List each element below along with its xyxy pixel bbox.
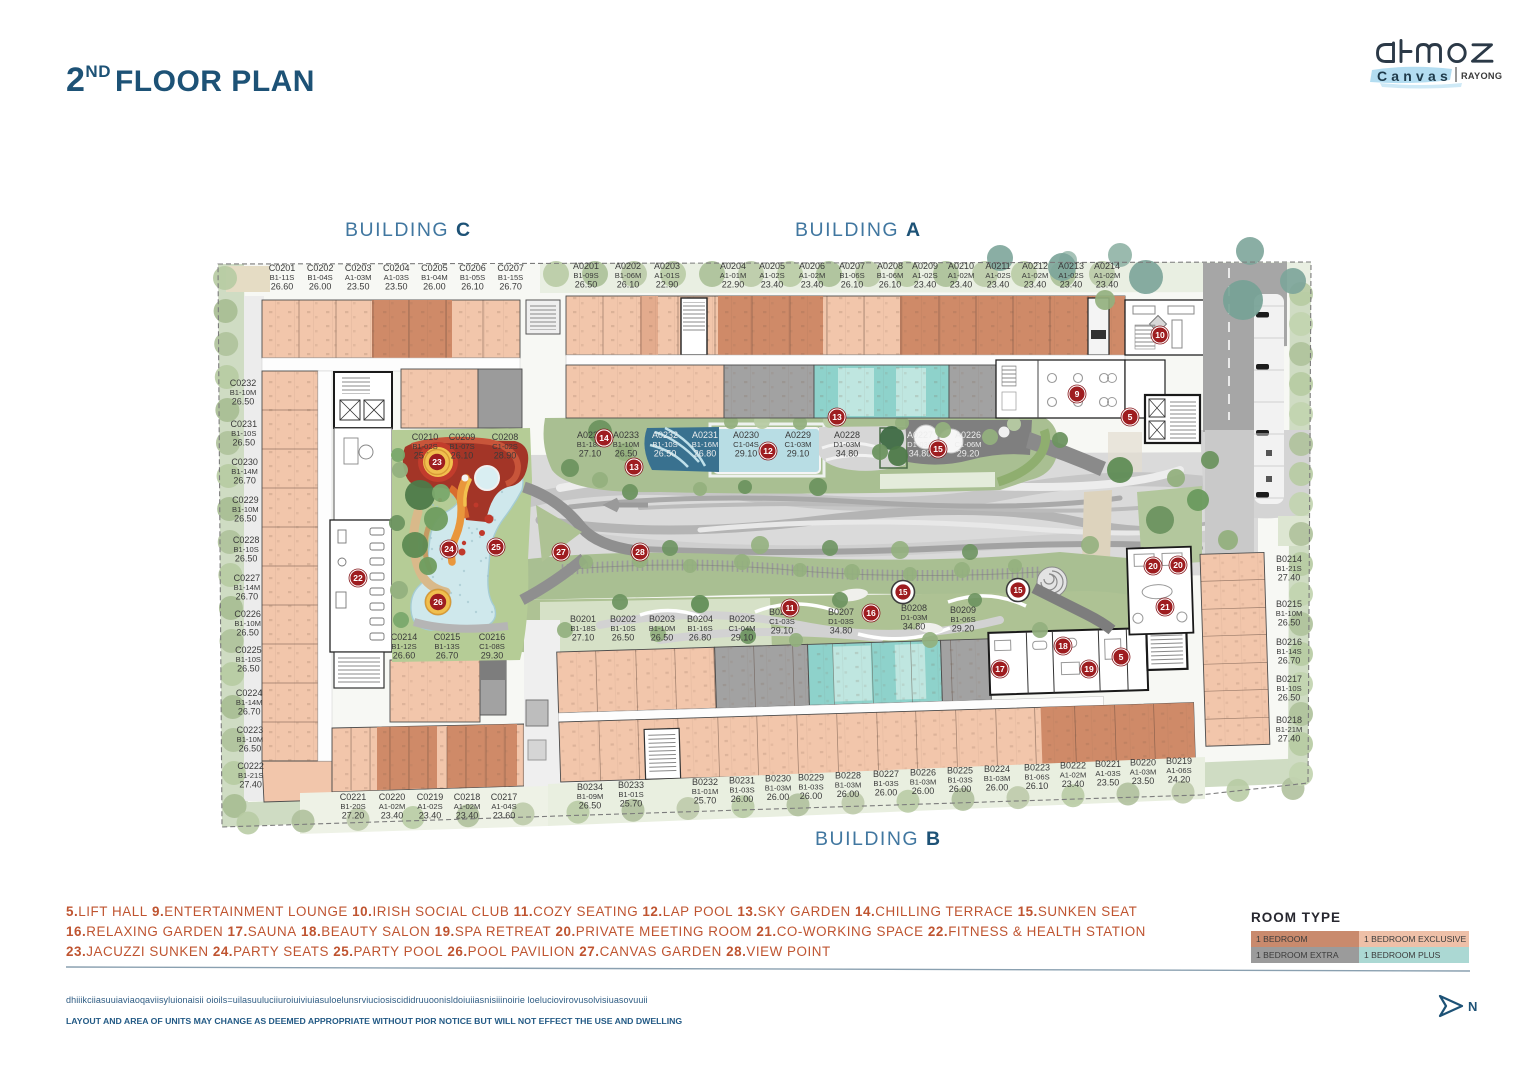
svg-text:B0229B1-03S26.00: B0229B1-03S26.00	[798, 772, 824, 801]
svg-text:A0207B1-06S26.10: A0207B1-06S26.10	[839, 261, 865, 290]
svg-text:A0226C1-06M29.20: A0226C1-06M29.20	[954, 430, 981, 459]
svg-text:BUILDING B: BUILDING B	[815, 828, 942, 850]
svg-text:C0226B1-10M26.50: C0226B1-10M26.50	[234, 609, 261, 638]
svg-text:dhiiikciiasuuiaviaoqaviisyluio: dhiiikciiasuuiaviaoqaviisyluionaisii oio…	[66, 995, 648, 1005]
svg-text:B0207D1-03S34.80: B0207D1-03S34.80	[828, 607, 854, 636]
svg-text:B0232B1-01M25.70: B0232B1-01M25.70	[692, 777, 719, 806]
svg-text:C0208C1-02S28.90: C0208C1-02S28.90	[492, 432, 519, 461]
svg-text:C0205B1-04M26.00: C0205B1-04M26.00	[421, 263, 448, 292]
svg-text:A0206A1-02M23.40: A0206A1-02M23.40	[799, 261, 826, 290]
svg-text:1 BEDROOM EXCLUSIVE: 1 BEDROOM EXCLUSIVE	[1364, 934, 1466, 944]
svg-text:B0215B1-10M26.50: B0215B1-10M26.50	[1276, 599, 1303, 628]
svg-text:C0222B1-21S27.40: C0222B1-21S27.40	[237, 761, 264, 790]
svg-text:13: 13	[629, 462, 639, 472]
svg-text:C0209B1-07S26.10: C0209B1-07S26.10	[449, 432, 476, 461]
svg-text:C0220A1-02M23.40: C0220A1-02M23.40	[379, 792, 406, 821]
svg-text:5.LIFT HALL 9.ENTERTAINMENT L: 5.LIFT HALL 9.ENTERTAINMENT LOUNGE 10.IR…	[66, 904, 1137, 919]
svg-text:C0206B1-05S26.10: C0206B1-05S26.10	[459, 263, 486, 292]
svg-text:B0234B1-09M26.50: B0234B1-09M26.50	[577, 782, 604, 811]
svg-text:C0227B1-14M26.70: C0227B1-14M26.70	[234, 573, 261, 602]
svg-text:A0201B1-09S26.50: A0201B1-09S26.50	[573, 261, 599, 290]
svg-text:C0224B1-14M26.70: C0224B1-14M26.70	[236, 688, 263, 717]
svg-text:B0233B1-01S25.70: B0233B1-01S25.70	[618, 780, 644, 809]
svg-text:Canvas: Canvas	[1377, 68, 1452, 84]
svg-text:B0230B1-03M26.00: B0230B1-03M26.00	[765, 774, 792, 803]
svg-text:B0227B1-03S26.00: B0227B1-03S26.00	[873, 769, 899, 798]
svg-text:B0220A1-03M23.50: B0220A1-03M23.50	[1130, 758, 1157, 787]
svg-text:C0221B1-20S27.20: C0221B1-20S27.20	[340, 792, 367, 821]
svg-text:11: 11	[785, 603, 794, 613]
svg-text:20: 20	[1173, 560, 1183, 570]
svg-text:18: 18	[1058, 641, 1068, 651]
svg-text:A0230C1-04S29.10: A0230C1-04S29.10	[733, 430, 759, 459]
svg-text:5: 5	[1119, 652, 1124, 662]
svg-text:C0215B1-13S26.70: C0215B1-13S26.70	[434, 632, 461, 661]
svg-text:A0209A1-02S23.40: A0209A1-02S23.40	[912, 261, 938, 290]
svg-text:12: 12	[763, 446, 773, 456]
svg-text:13: 13	[832, 412, 842, 422]
svg-text:B0214B1-21S27.40: B0214B1-21S27.40	[1276, 554, 1302, 583]
svg-text:9: 9	[1075, 389, 1080, 399]
svg-text:16.RELAXING GARDEN 17.SAUNA: 16.RELAXING GARDEN 17.SAUNA 18.BEAUTY SA…	[66, 924, 1146, 939]
svg-text:5: 5	[1128, 412, 1133, 422]
svg-text:B0204B1-16S26.80: B0204B1-16S26.80	[687, 614, 713, 643]
svg-text:C0207B1-15S26.70: C0207B1-15S26.70	[497, 263, 524, 292]
svg-text:B0219A1-06S24.20: B0219A1-06S24.20	[1166, 756, 1192, 785]
svg-text:LAYOUT AND AREA OF UNITS MAY C: LAYOUT AND AREA OF UNITS MAY CHANGE AS D…	[66, 1016, 682, 1026]
svg-text:B0225B1-03S26.00: B0225B1-03S26.00	[947, 766, 973, 795]
svg-text:B0226B1-03M26.00: B0226B1-03M26.00	[910, 767, 937, 796]
svg-text:B0218B1-21M27.40: B0218B1-21M27.40	[1276, 715, 1303, 744]
svg-text:28: 28	[635, 547, 645, 557]
svg-text:C0214B1-12S26.60: C0214B1-12S26.60	[391, 632, 418, 661]
svg-text:19: 19	[1084, 664, 1094, 674]
svg-text:15: 15	[933, 444, 943, 454]
svg-text:26: 26	[433, 597, 443, 607]
svg-text:BUILDING A: BUILDING A	[795, 219, 922, 241]
svg-text:C0231B1-10S26.50: C0231B1-10S26.50	[231, 419, 258, 448]
svg-text:B0223B1-06S26.10: B0223B1-06S26.10	[1024, 762, 1050, 791]
svg-text:23.JACUZZI SUNKEN 24.PARTY SE: 23.JACUZZI SUNKEN 24.PARTY SEATS 25.PART…	[66, 944, 831, 959]
svg-text:15: 15	[899, 588, 908, 597]
svg-text:C0202B1-04S26.00: C0202B1-04S26.00	[307, 263, 334, 292]
svg-text:C0229B1-10M26.50: C0229B1-10M26.50	[232, 495, 259, 524]
svg-text:14: 14	[599, 433, 609, 443]
svg-text:A0232B1-10S26.50: A0232B1-10S26.50	[652, 430, 678, 459]
svg-text:B0231B1-03S26.00: B0231B1-03S26.00	[729, 775, 755, 804]
svg-text:B0221A1-03S23.50: B0221A1-03S23.50	[1095, 759, 1121, 788]
svg-text:B0201B1-18S27.10: B0201B1-18S27.10	[570, 614, 596, 643]
svg-text:A0228D1-03M34.80: A0228D1-03M34.80	[833, 430, 860, 459]
svg-text:B0217B1-10S26.50: B0217B1-10S26.50	[1276, 674, 1302, 703]
svg-text:A0231B1-16M26.80: A0231B1-16M26.80	[692, 430, 719, 459]
svg-text:B0224B1-03M26.00: B0224B1-03M26.00	[984, 764, 1011, 793]
svg-text:A0208B1-06M26.10: A0208B1-06M26.10	[877, 261, 904, 290]
svg-text:23: 23	[432, 457, 442, 467]
svg-text:21: 21	[1160, 602, 1170, 612]
svg-text:N: N	[1468, 999, 1477, 1014]
svg-text:16: 16	[866, 608, 876, 618]
svg-text:B0228B1-03M26.00: B0228B1-03M26.00	[835, 771, 862, 800]
svg-text:BUILDING C: BUILDING C	[345, 219, 472, 241]
svg-text:C0201B1-11S26.60: C0201B1-11S26.60	[269, 263, 296, 292]
svg-text:C0232B1-10M26.50: C0232B1-10M26.50	[230, 378, 257, 407]
svg-text:C0219A1-02S23.40: C0219A1-02S23.40	[417, 792, 444, 821]
svg-text:B0216B1-14S26.70: B0216B1-14S26.70	[1276, 637, 1302, 666]
svg-text:25: 25	[491, 542, 501, 552]
svg-text:A0233B1-10M26.50: A0233B1-10M26.50	[613, 430, 640, 459]
svg-text:27: 27	[556, 547, 566, 557]
svg-text:A0205A1-02S23.40: A0205A1-02S23.40	[759, 261, 785, 290]
svg-text:24: 24	[444, 544, 454, 554]
svg-text:B0208D1-03M34.80: B0208D1-03M34.80	[900, 603, 927, 632]
svg-text:C0203A1-03M23.50: C0203A1-03M23.50	[345, 263, 372, 292]
svg-text:A0229C1-03M29.10: A0229C1-03M29.10	[784, 430, 811, 459]
svg-text:A0214A1-02M23.40: A0214A1-02M23.40	[1094, 261, 1121, 290]
svg-text:B0205C1-04M29.10: B0205C1-04M29.10	[728, 614, 755, 643]
svg-text:RAYONG: RAYONG	[1461, 71, 1502, 81]
svg-text:A0210A1-02M23.40: A0210A1-02M23.40	[948, 261, 975, 290]
svg-text:B0209B1-06S29.20: B0209B1-06S29.20	[950, 605, 976, 634]
svg-text:1 BEDROOM PLUS: 1 BEDROOM PLUS	[1364, 950, 1441, 960]
svg-text:A0212A1-02M23.40: A0212A1-02M23.40	[1022, 261, 1049, 290]
svg-text:C0223B1-10M26.50: C0223B1-10M26.50	[237, 725, 264, 754]
svg-text:C0218A1-02M23.40: C0218A1-02M23.40	[454, 792, 481, 821]
svg-text:A0227D1-03S34.80: A0227D1-03S34.80	[907, 430, 933, 459]
svg-text:ROOM TYPE: ROOM TYPE	[1251, 910, 1341, 925]
svg-text:A0204A1-01M22.90: A0204A1-01M22.90	[720, 261, 747, 290]
svg-text:A0211A1-02S23.40: A0211A1-02S23.40	[985, 261, 1010, 290]
svg-text:B0222A1-02M23.40: B0222A1-02M23.40	[1060, 761, 1087, 790]
svg-text:22: 22	[353, 573, 363, 583]
svg-text:15: 15	[1014, 586, 1023, 595]
svg-text:C0216C1-08S29.30: C0216C1-08S29.30	[479, 632, 506, 661]
svg-text:A0203A1-01S22.90: A0203A1-01S22.90	[654, 261, 680, 290]
svg-text:C0230B1-14M26.70: C0230B1-14M26.70	[231, 457, 258, 486]
svg-text:10: 10	[1155, 330, 1165, 340]
svg-text:1 BEDROOM: 1 BEDROOM	[1256, 934, 1308, 944]
svg-text:C0217A1-04S23.60: C0217A1-04S23.60	[491, 792, 518, 821]
svg-text:C0225B1-10S26.50: C0225B1-10S26.50	[235, 645, 262, 674]
svg-text:B0203B1-10M26.50: B0203B1-10M26.50	[649, 614, 676, 643]
svg-text:17: 17	[995, 664, 1005, 674]
svg-text:A0213A1-02S23.40: A0213A1-02S23.40	[1058, 261, 1084, 290]
svg-text:1 BEDROOM EXTRA: 1 BEDROOM EXTRA	[1256, 950, 1339, 960]
svg-text:20: 20	[1148, 561, 1158, 571]
svg-text:C0228B1-10S26.50: C0228B1-10S26.50	[233, 535, 260, 564]
svg-text:B0202B1-10S26.50: B0202B1-10S26.50	[610, 614, 636, 643]
svg-text:C0204A1-03S23.50: C0204A1-03S23.50	[383, 263, 410, 292]
svg-text:A0202B1-06M26.10: A0202B1-06M26.10	[615, 261, 642, 290]
